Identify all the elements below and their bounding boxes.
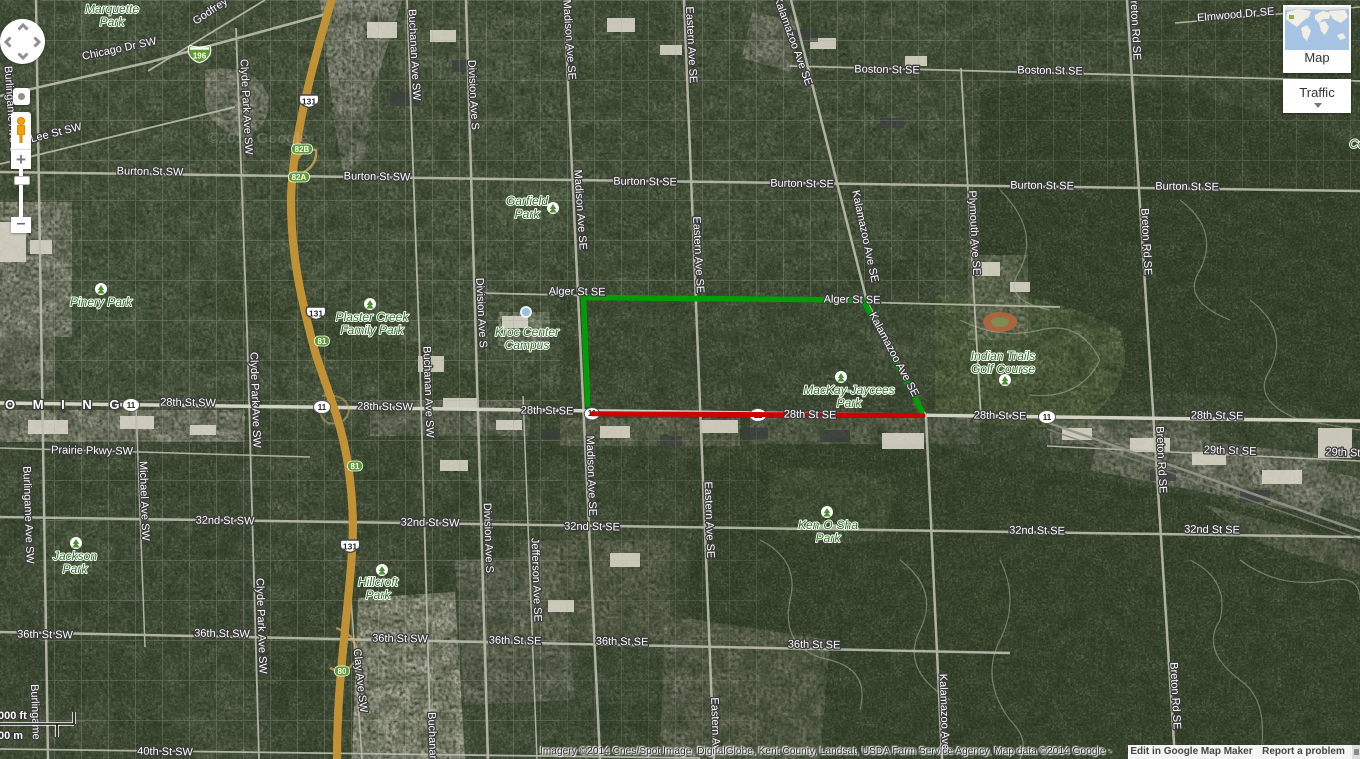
- svg-text:Burton St SE: Burton St SE: [613, 175, 677, 188]
- svg-text:Burton St SW: Burton St SW: [344, 170, 411, 183]
- svg-text:196: 196: [193, 52, 207, 61]
- svg-text:Division Ave S: Division Ave S: [481, 503, 495, 573]
- svg-text:36th St SW: 36th St SW: [17, 629, 73, 642]
- svg-text:36th St SE: 36th St SE: [788, 639, 841, 652]
- svg-text:Park: Park: [816, 531, 842, 545]
- svg-text:32nd St SW: 32nd St SW: [401, 516, 461, 529]
- svg-text:Garfield: Garfield: [506, 194, 548, 208]
- svg-text:Burton St SW: Burton St SW: [117, 165, 184, 178]
- svg-text:36th St SW: 36th St SW: [372, 633, 428, 646]
- svg-text:Boston St SE: Boston St SE: [854, 63, 920, 76]
- svg-text:Family Park: Family Park: [340, 323, 404, 337]
- svg-text:28th St SE: 28th St SE: [784, 409, 837, 422]
- svg-text:Burton St SE: Burton St SE: [770, 177, 834, 190]
- svg-text:Alger St SE: Alger St SE: [824, 294, 881, 307]
- svg-text:36th St SW: 36th St SW: [194, 628, 250, 641]
- svg-text:32nd St SW: 32nd St SW: [196, 514, 256, 527]
- svg-text:82A: 82A: [292, 173, 307, 182]
- svg-text:Jackson: Jackson: [52, 549, 97, 563]
- svg-text:29th St S: 29th St S: [1325, 446, 1360, 460]
- svg-text:28th St SW: 28th St SW: [357, 401, 413, 414]
- svg-text:©2014 Google: ©2014 Google: [208, 130, 308, 147]
- svg-text:Park: Park: [515, 207, 541, 221]
- svg-text:Park: Park: [837, 396, 863, 410]
- svg-text:81: 81: [318, 337, 327, 346]
- svg-text:Buchanan: Buchanan: [425, 712, 439, 759]
- svg-text:Ken-O-Sha: Ken-O-Sha: [798, 518, 858, 532]
- svg-text:O M I N G: O M I N G: [5, 397, 127, 412]
- svg-text:Golf Course: Golf Course: [971, 362, 1035, 376]
- svg-text:32nd St SE: 32nd St SE: [564, 521, 620, 534]
- svg-text:Indian Trails: Indian Trails: [971, 349, 1035, 363]
- svg-text:Hillcroft: Hillcroft: [358, 575, 399, 589]
- svg-text:Marquette: Marquette: [85, 2, 139, 16]
- svg-text:28th St SE: 28th St SE: [521, 405, 574, 418]
- svg-text:36th St SE: 36th St SE: [596, 636, 649, 649]
- svg-text:Pinery Park: Pinery Park: [70, 295, 133, 309]
- svg-text:MacKay-Jaycees: MacKay-Jaycees: [803, 383, 894, 397]
- svg-text:131: 131: [309, 309, 323, 319]
- svg-text:80: 80: [338, 667, 347, 676]
- svg-text:36th St SE: 36th St SE: [489, 635, 542, 648]
- svg-text:32nd St SE: 32nd St SE: [1184, 524, 1240, 537]
- svg-text:Eastern Av: Eastern Av: [708, 697, 722, 751]
- svg-text:Park: Park: [100, 15, 126, 29]
- svg-text:Burton St SE: Burton St SE: [1010, 179, 1074, 192]
- svg-text:11: 11: [318, 403, 327, 412]
- svg-text:Park: Park: [63, 562, 89, 576]
- svg-text:40th St SW: 40th St SW: [137, 746, 193, 759]
- svg-text:Boston St SE: Boston St SE: [1017, 64, 1083, 77]
- svg-text:Campus: Campus: [505, 338, 550, 352]
- svg-text:29th St SE: 29th St SE: [1204, 444, 1257, 458]
- svg-text:Burton St SE: Burton St SE: [1155, 180, 1219, 193]
- svg-text:Plaster Creek: Plaster Creek: [336, 310, 410, 324]
- svg-text:131: 131: [343, 542, 357, 552]
- svg-text:28th St SE: 28th St SE: [974, 410, 1027, 423]
- svg-text:32nd St SE: 32nd St SE: [1009, 525, 1065, 538]
- svg-text:28th St SE: 28th St SE: [1191, 410, 1244, 423]
- svg-text:Alger St SE: Alger St SE: [549, 286, 606, 299]
- svg-text:Co: Co: [1349, 137, 1360, 151]
- svg-text:81: 81: [351, 462, 360, 471]
- svg-text:Prairie Pkwy SW: Prairie Pkwy SW: [51, 444, 134, 457]
- svg-text:000 ft: 000 ft: [0, 710, 27, 722]
- svg-text:11: 11: [127, 401, 136, 410]
- svg-text:28th St SW: 28th St SW: [160, 397, 216, 410]
- svg-text:11: 11: [1043, 413, 1052, 422]
- svg-text:Kroc Center: Kroc Center: [495, 325, 560, 339]
- svg-text:131: 131: [302, 97, 316, 107]
- svg-text:Park: Park: [366, 588, 392, 602]
- svg-text:00 m: 00 m: [0, 730, 23, 742]
